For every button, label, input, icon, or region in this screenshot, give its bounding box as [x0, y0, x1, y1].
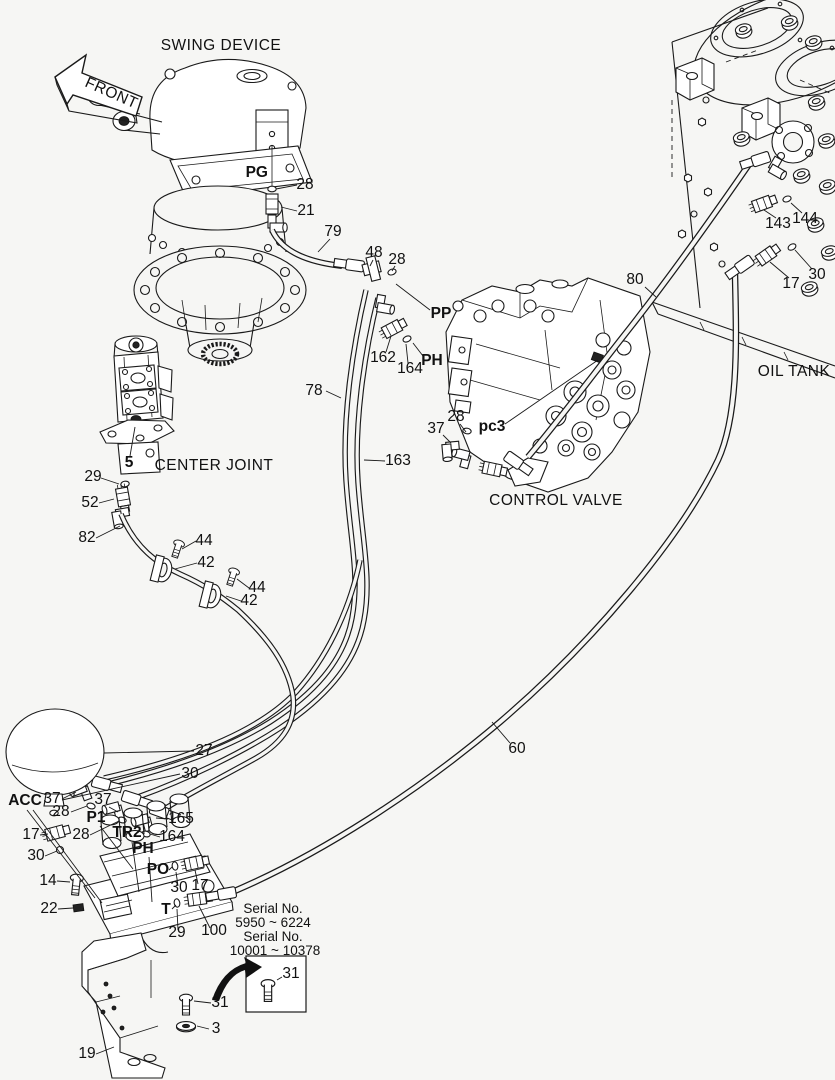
part-label-21-4: 21 [297, 202, 314, 219]
part-label-22-52: 22 [40, 900, 57, 917]
title-control-valve-20: CONTROL VALVE [489, 492, 623, 509]
part-label-17-50: 17 [191, 877, 208, 894]
part-label-28-3: 28 [296, 176, 313, 193]
part-label-162-9: 162 [370, 349, 396, 366]
port-pg-2: PG [246, 164, 268, 181]
part-label-164-47: 164 [159, 828, 185, 845]
part-label-37-39: 37 [94, 791, 111, 808]
port-pc3-21: pc3 [479, 418, 506, 435]
title-center-joint-24: CENTER JOINT [155, 457, 274, 474]
parts-diagram-page: SWING DEVICEFRONTPG2821794828PP162164PH7… [0, 0, 835, 1080]
part-label-28-7: 28 [388, 251, 405, 268]
serial-serial-no-56: Serial No. [243, 901, 302, 916]
bracket-drawing [82, 933, 196, 1078]
control-valve-drawing [446, 278, 650, 492]
part-label-82-28: 82 [78, 529, 95, 546]
part-label-144-16: 144 [792, 210, 818, 227]
part-label-28-23: 28 [447, 408, 464, 425]
port-pp-8: PP [431, 305, 452, 322]
port-p1-40: P1 [87, 809, 106, 826]
part-label-3-62: 3 [212, 1020, 221, 1037]
port-ph-11: PH [421, 352, 443, 369]
part-label-52-27: 52 [81, 494, 98, 511]
part-label-19-63: 19 [78, 1045, 95, 1062]
part-label-29-54: 29 [168, 924, 185, 941]
part-label-27-34: 27 [195, 742, 212, 759]
serial-10001-10378-59: 10001 ~ 10378 [230, 943, 320, 958]
serial-5950-6224-57: 5950 ~ 6224 [235, 915, 311, 930]
part-label-143-15: 143 [765, 215, 791, 232]
parts-diagram-svg: SWING DEVICEFRONTPG2821794828PP162164PH7… [0, 0, 835, 1080]
title-swing-device-0: SWING DEVICE [161, 37, 282, 54]
part-label-42-32: 42 [240, 592, 257, 609]
part-label-48-6: 48 [365, 244, 382, 261]
serial-serial-no-58: Serial No. [243, 929, 302, 944]
part-label-80-14: 80 [626, 271, 644, 288]
part-label-60-33: 60 [508, 740, 526, 757]
part-label-14-51: 14 [39, 872, 57, 889]
part-label-42-30: 42 [197, 554, 214, 571]
port-po-48: PO [147, 861, 169, 878]
part-label-78-12: 78 [305, 382, 322, 399]
part-label-30-49: 30 [170, 879, 188, 896]
part-label-37-22: 37 [427, 420, 444, 437]
part-label-17-17: 17 [782, 275, 799, 292]
part-label-17-43: 17 [22, 826, 39, 843]
part-label-44-29: 44 [195, 532, 213, 549]
part-label-164-10: 164 [397, 360, 423, 377]
part-label-29-26: 29 [84, 468, 101, 485]
port-t-53: T [161, 901, 171, 918]
part-label-30-35: 30 [181, 765, 199, 782]
part-label-5-25: 5 [125, 454, 134, 471]
part-label-163-13: 163 [385, 452, 411, 469]
part-label-165-46: 165 [168, 810, 194, 827]
port-tr2-42: TR2 [112, 824, 141, 841]
center-joint-drawing [100, 336, 174, 529]
part-label-28-41: 28 [72, 826, 89, 843]
part-label-31-60: 31 [282, 965, 299, 982]
part-label-28-38: 28 [52, 803, 69, 820]
part-label-31-61: 31 [211, 994, 228, 1011]
part-label-100-55: 100 [201, 922, 227, 939]
oil-tank-drawing [652, 0, 835, 378]
port-ph-45: PH [132, 840, 154, 857]
port-acc-36: ACC [8, 792, 42, 809]
title-oil-tank-19: OIL TANK [758, 363, 831, 380]
part-label-30-18: 30 [808, 266, 826, 283]
part-label-79-5: 79 [324, 223, 341, 240]
part-label-30-44: 30 [27, 847, 45, 864]
